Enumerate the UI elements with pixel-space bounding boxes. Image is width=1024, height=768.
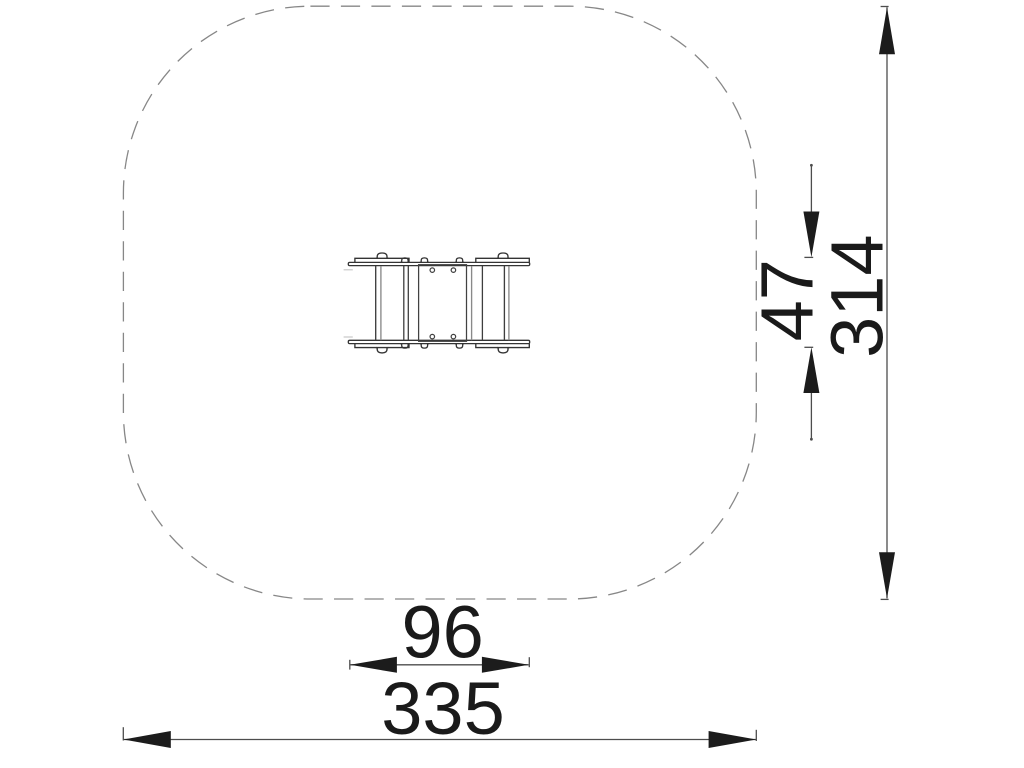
svg-text:314: 314 bbox=[816, 234, 899, 357]
svg-text:335: 335 bbox=[381, 667, 504, 750]
svg-text:96: 96 bbox=[402, 591, 484, 674]
